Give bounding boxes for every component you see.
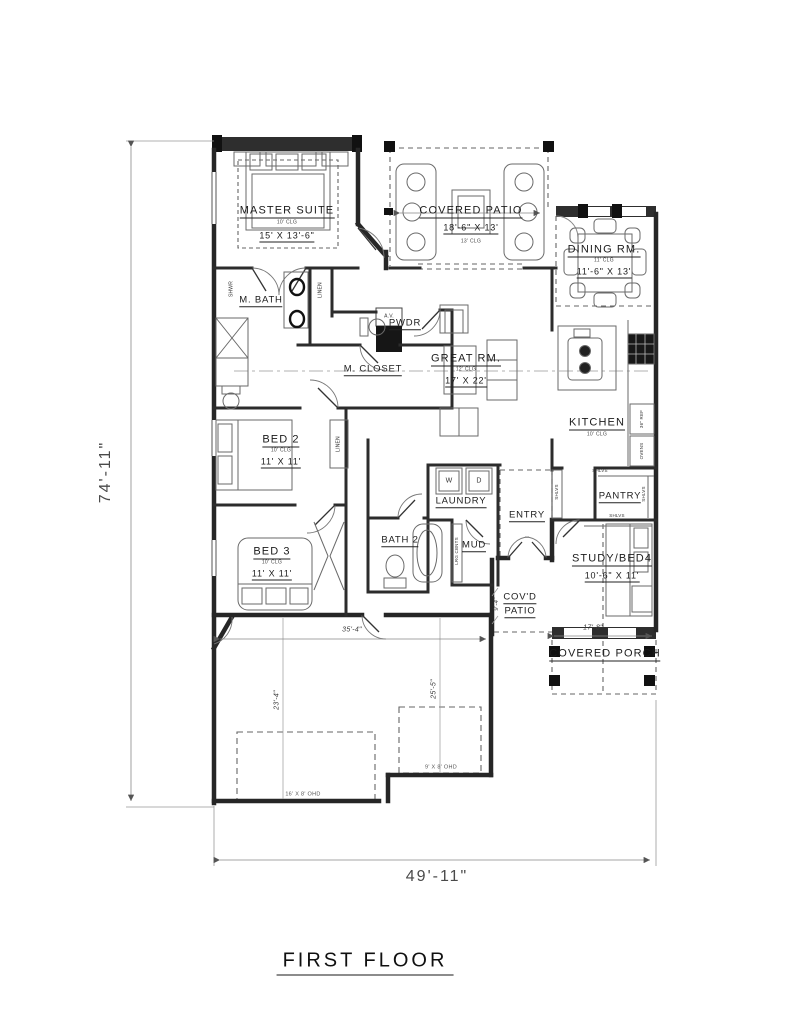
room-label-bed3: BED 3 bbox=[253, 547, 290, 560]
room-label-covered-patio: COVERED PATIO bbox=[419, 206, 522, 219]
room-label-covd-patio-1: COV'D bbox=[503, 592, 536, 604]
shelves-label-pantry-side: SHLVS bbox=[642, 486, 647, 501]
room-label-m-closet: M. CLOSET bbox=[344, 364, 402, 376]
washer-label: W bbox=[446, 478, 453, 485]
size-label-bed2: 11' X 11' bbox=[261, 458, 301, 469]
room-label-entry: ENTRY bbox=[509, 510, 545, 522]
size-label-dining: 11'-6" X 13' bbox=[577, 268, 632, 279]
cabinets-label: LRG CBNTS bbox=[455, 537, 460, 565]
linen-label-hall: LINEN bbox=[319, 282, 324, 298]
size-label-covered-patio: 18'-6" X 13' bbox=[443, 224, 498, 235]
room-label-bath2: BATH 2 bbox=[381, 535, 418, 547]
room-label-pantry: PANTRY bbox=[599, 491, 641, 503]
room-label-dining: DINING RM. bbox=[568, 245, 641, 258]
dim-patio-depth: 9'-4" bbox=[494, 597, 500, 610]
linen-label-bed2: LINEN bbox=[337, 436, 342, 452]
ceiling-label-kitchen: 10' CLG bbox=[587, 433, 607, 438]
size-label-great-rm: 17' X 22' bbox=[445, 377, 487, 388]
fridge-label: 36" REF bbox=[640, 410, 645, 428]
size-label-bed3: 11' X 11' bbox=[252, 570, 292, 581]
dim-garage-depth-right: 25'-5" bbox=[431, 679, 438, 699]
overall-height-dim: 74'-11" bbox=[98, 441, 114, 503]
room-label-pwdr: PWDR bbox=[389, 318, 421, 330]
room-label-study-bed4: STUDY/BED4 bbox=[572, 554, 652, 567]
garage-door-9-label: 9' X 8' OHD bbox=[425, 765, 457, 771]
floorplan-drawing bbox=[0, 0, 791, 1024]
floorplan-page: MASTER SUITE 10' CLG 15' X 13'-6" COVERE… bbox=[0, 0, 791, 1024]
dryer-label: D bbox=[476, 478, 481, 485]
ovens-label: OVENS bbox=[640, 443, 645, 460]
dim-porch-width: 17'-8" bbox=[583, 625, 603, 632]
ceiling-label-dining: 11' CLG bbox=[594, 259, 614, 264]
ceiling-label-bed3: 10' CLG bbox=[262, 561, 282, 566]
sheet-title: FIRST FLOOR bbox=[277, 951, 454, 976]
ceiling-label-bed2: 10' CLG bbox=[271, 449, 291, 454]
room-label-covered-porch: COVERED PORCH bbox=[549, 649, 660, 662]
shower-label: SHWR bbox=[230, 281, 235, 297]
room-label-covd-patio-2: PATIO bbox=[504, 606, 535, 618]
shelves-label-pantry-top: SHLVS bbox=[592, 469, 607, 474]
overall-width-dim: 49'-11" bbox=[406, 869, 468, 885]
size-label-study-bed4: 10'-6" X 11' bbox=[585, 572, 640, 583]
room-label-great-rm: GREAT RM. bbox=[431, 354, 501, 367]
shelves-label-hall: SHLVS bbox=[555, 484, 560, 499]
dim-garage-width: 35'-4" bbox=[342, 627, 362, 634]
garage-door-16-label: 16' X 8' OHD bbox=[285, 792, 320, 798]
room-label-master-suite: MASTER SUITE bbox=[240, 206, 335, 219]
shelves-label-study: SHLVS bbox=[609, 514, 624, 519]
room-label-laundry: LAUNDRY bbox=[436, 496, 487, 508]
room-label-bed2: BED 2 bbox=[262, 435, 299, 448]
ceiling-label-master: 10' CLG bbox=[277, 221, 297, 226]
dim-garage-depth-left: 23'-4" bbox=[274, 690, 281, 710]
room-label-m-bath: M. BATH bbox=[239, 295, 282, 307]
ceiling-label-covered-patio: 13' CLG bbox=[461, 240, 481, 245]
room-label-mud: MUD bbox=[462, 540, 486, 552]
size-label-master: 15' X 13'-6" bbox=[259, 232, 314, 243]
ceiling-label-great-rm: 12' CLG bbox=[456, 368, 476, 373]
room-label-kitchen: KITCHEN bbox=[569, 418, 625, 431]
av-label: A.V. bbox=[384, 315, 394, 320]
